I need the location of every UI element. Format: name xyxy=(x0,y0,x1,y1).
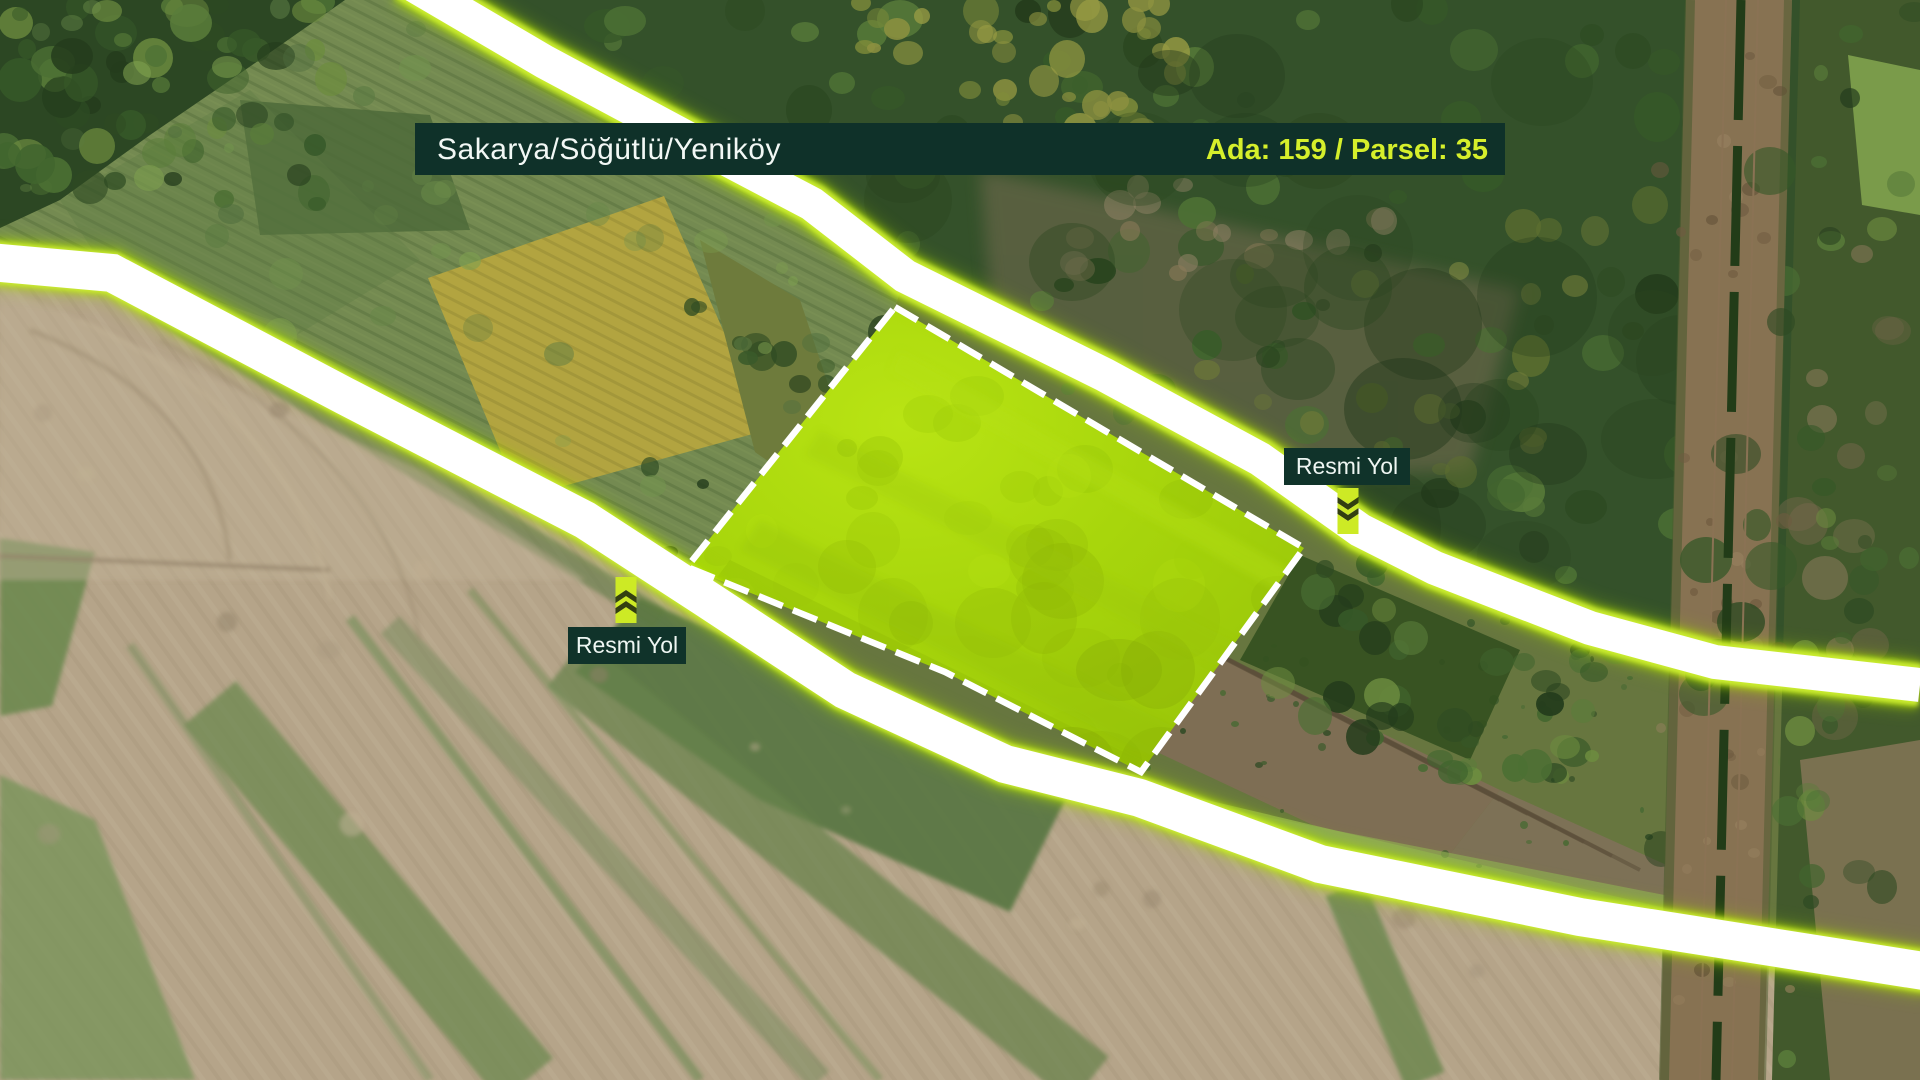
svg-text:Resmi Yol: Resmi Yol xyxy=(1296,453,1398,479)
svg-text:Resmi Yol: Resmi Yol xyxy=(576,632,678,658)
svg-text:Sakarya/Söğütlü/Yeniköy: Sakarya/Söğütlü/Yeniköy xyxy=(437,133,781,166)
svg-text:Ada: 159 / Parsel: 35: Ada: 159 / Parsel: 35 xyxy=(1206,134,1488,166)
